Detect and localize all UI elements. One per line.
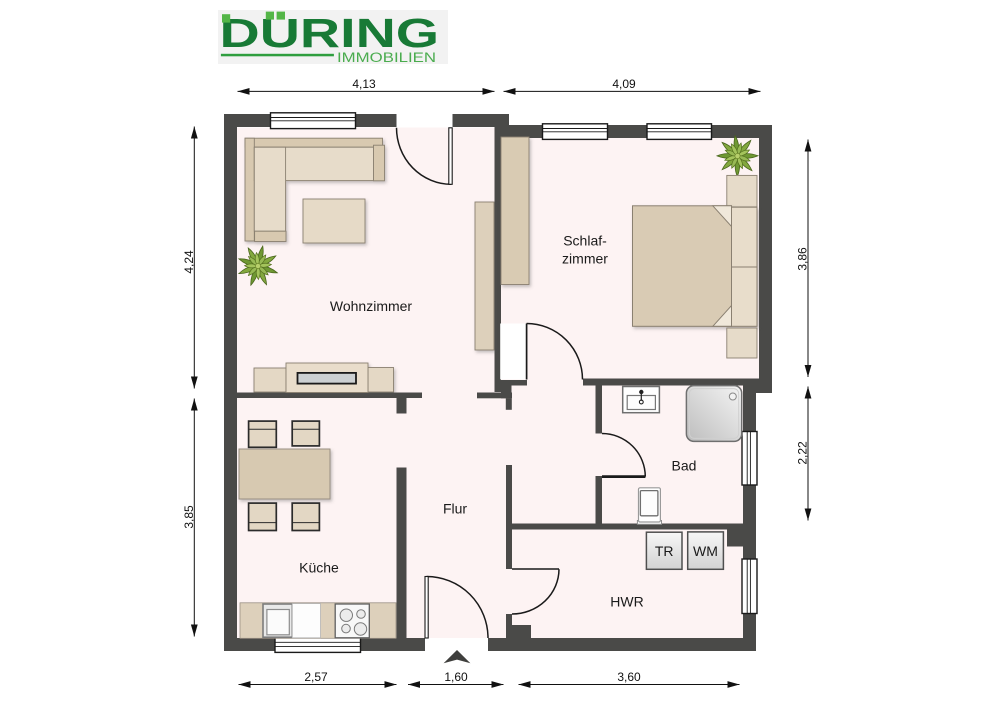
svg-text:3,60: 3,60 [617, 670, 641, 684]
svg-text:zimmer: zimmer [562, 251, 608, 267]
svg-text:Küche: Küche [299, 560, 339, 576]
svg-text:Flur: Flur [443, 501, 467, 517]
svg-text:2,22: 2,22 [796, 441, 810, 465]
svg-text:TR: TR [655, 543, 674, 559]
svg-text:Wohnzimmer: Wohnzimmer [330, 298, 413, 314]
svg-text:3,85: 3,85 [182, 505, 196, 529]
svg-text:4,13: 4,13 [352, 77, 376, 91]
svg-text:Bad: Bad [672, 458, 697, 474]
svg-text:Schlaf-: Schlaf- [563, 233, 607, 249]
svg-text:1,60: 1,60 [444, 670, 468, 684]
svg-text:4,09: 4,09 [612, 77, 636, 91]
svg-text:4,24: 4,24 [182, 250, 196, 274]
svg-text:IMMOBILIEN: IMMOBILIEN [337, 50, 436, 65]
svg-text:HWR: HWR [610, 594, 643, 610]
svg-text:2,57: 2,57 [304, 670, 328, 684]
svg-text:WM: WM [693, 543, 718, 559]
svg-text:3,86: 3,86 [796, 247, 810, 271]
